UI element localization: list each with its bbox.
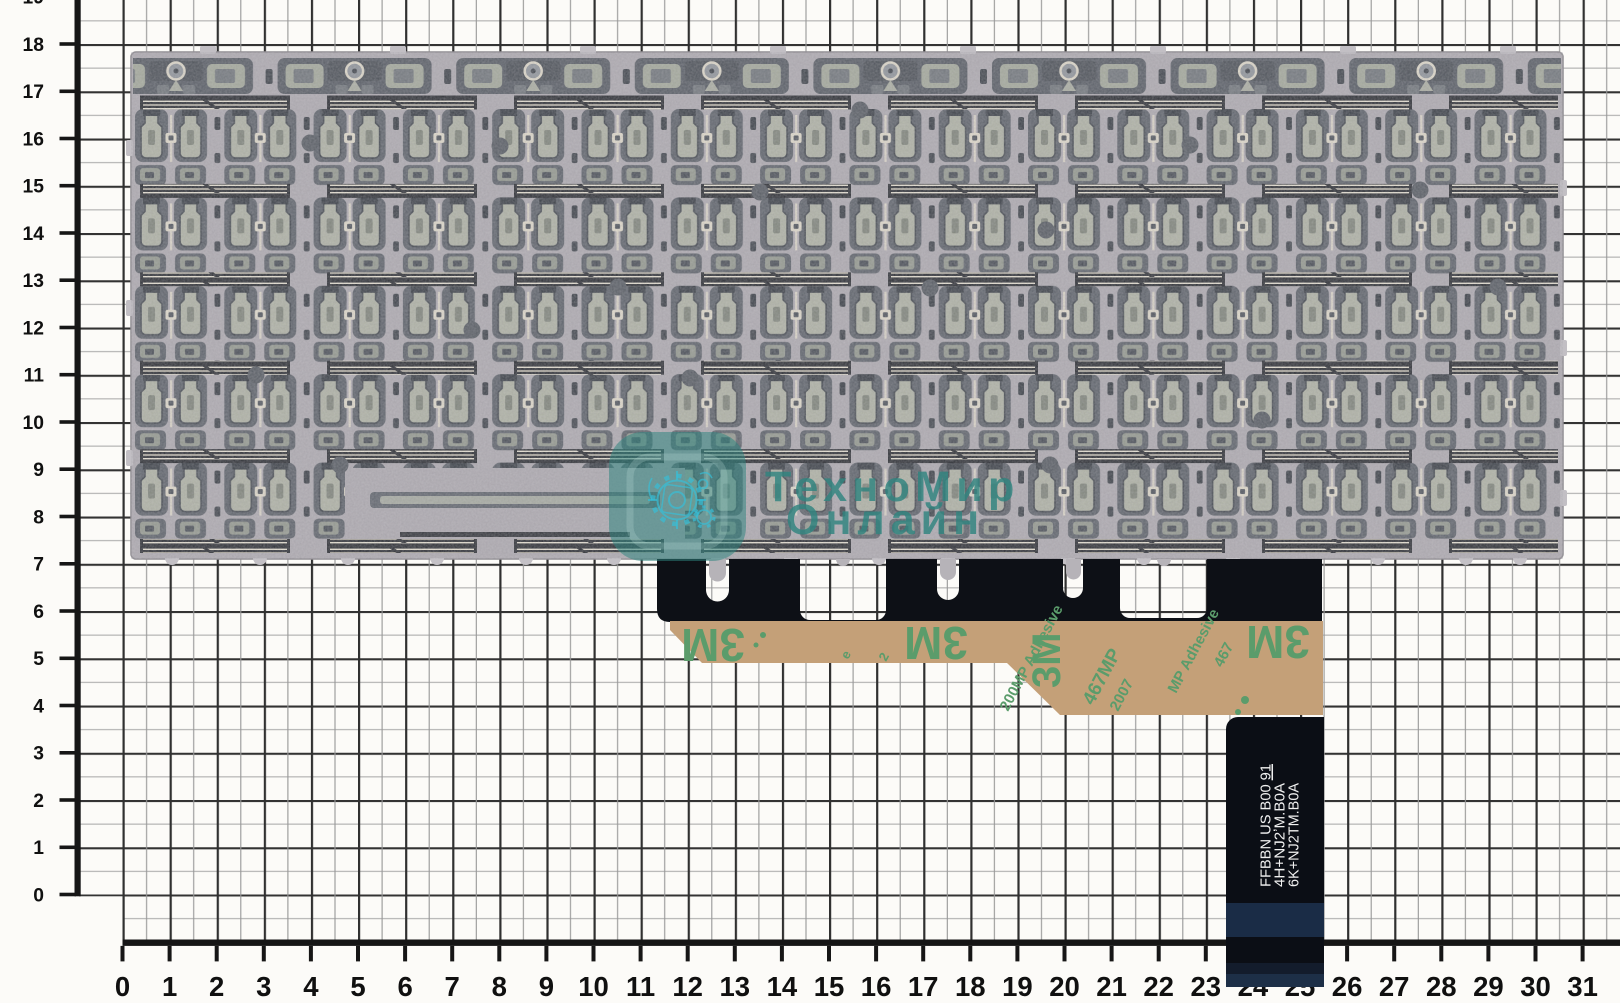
svg-text:17: 17 xyxy=(23,82,44,103)
svg-text:1: 1 xyxy=(33,838,44,859)
svg-text:18: 18 xyxy=(955,971,986,1002)
svg-text:0: 0 xyxy=(33,885,44,906)
svg-text:7: 7 xyxy=(33,555,44,576)
svg-text:2: 2 xyxy=(209,971,224,1002)
svg-text:3: 3 xyxy=(33,744,44,765)
svg-text:19: 19 xyxy=(1002,971,1033,1002)
svg-text:26: 26 xyxy=(1332,971,1363,1002)
svg-text:21: 21 xyxy=(1096,971,1127,1002)
svg-text:4: 4 xyxy=(303,971,319,1002)
svg-text:4: 4 xyxy=(33,696,44,717)
svg-text:3: 3 xyxy=(256,971,271,1002)
svg-text:8: 8 xyxy=(492,971,507,1002)
svg-text:6: 6 xyxy=(33,602,44,623)
svg-text:30: 30 xyxy=(1520,971,1551,1002)
svg-text:11: 11 xyxy=(24,366,45,387)
svg-text:Онлайн: Онлайн xyxy=(786,496,985,544)
svg-text:22: 22 xyxy=(1143,971,1174,1002)
svg-text:23: 23 xyxy=(1191,971,1222,1002)
svg-text:5: 5 xyxy=(350,971,365,1002)
svg-text:6K+NJ2TM.B0A: 6K+NJ2TM.B0A xyxy=(1286,782,1303,887)
svg-text:29: 29 xyxy=(1473,971,1504,1002)
svg-text:10: 10 xyxy=(23,413,44,434)
svg-text:0: 0 xyxy=(115,971,130,1002)
svg-text:14: 14 xyxy=(767,971,798,1002)
svg-text:11: 11 xyxy=(626,971,655,1002)
svg-text:19: 19 xyxy=(23,0,44,9)
svg-text:18: 18 xyxy=(23,35,45,56)
svg-text:10: 10 xyxy=(578,971,609,1002)
svg-text:28: 28 xyxy=(1426,971,1457,1002)
svg-text:14: 14 xyxy=(23,224,45,245)
svg-text:12: 12 xyxy=(23,318,44,339)
svg-text:6: 6 xyxy=(397,971,412,1002)
svg-text:31: 31 xyxy=(1567,971,1598,1002)
svg-text:9: 9 xyxy=(33,460,44,481)
svg-text:7: 7 xyxy=(445,971,460,1002)
svg-text:5: 5 xyxy=(33,649,44,670)
svg-text:17: 17 xyxy=(908,971,939,1002)
svg-text:1: 1 xyxy=(162,971,177,1002)
svg-text:9: 9 xyxy=(539,971,554,1002)
svg-text:8: 8 xyxy=(33,507,44,528)
svg-text:15: 15 xyxy=(814,971,845,1002)
svg-text:3M: 3M xyxy=(1246,616,1310,668)
svg-text:2: 2 xyxy=(33,791,44,812)
svg-text:13: 13 xyxy=(23,271,45,292)
svg-text:12: 12 xyxy=(672,971,703,1002)
svg-text:16: 16 xyxy=(23,129,45,150)
svg-text:15: 15 xyxy=(23,177,45,198)
svg-text:20: 20 xyxy=(1049,971,1080,1002)
svg-text:27: 27 xyxy=(1379,971,1410,1002)
svg-text:13: 13 xyxy=(720,971,751,1002)
svg-text:3M: 3M xyxy=(681,619,745,671)
svg-text:3M: 3M xyxy=(904,617,968,669)
svg-text:16: 16 xyxy=(861,971,892,1002)
